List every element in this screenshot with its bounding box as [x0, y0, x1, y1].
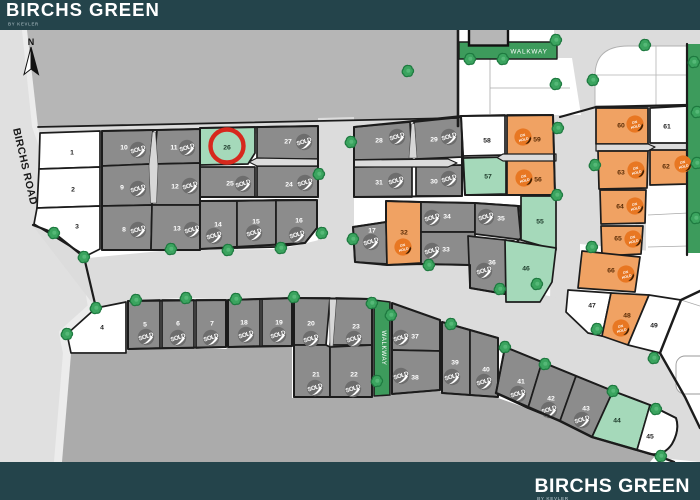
- svg-text:57: 57: [484, 173, 492, 180]
- svg-text:15: 15: [252, 218, 260, 225]
- svg-text:22: 22: [350, 371, 358, 378]
- svg-text:34: 34: [443, 213, 451, 220]
- svg-text:39: 39: [451, 359, 459, 366]
- svg-text:BIRCHS GREEN: BIRCHS GREEN: [534, 475, 690, 497]
- svg-text:BIRCHS GREEN: BIRCHS GREEN: [6, 0, 160, 20]
- svg-text:43: 43: [582, 405, 590, 412]
- svg-text:24: 24: [285, 181, 293, 188]
- svg-text:42: 42: [547, 395, 555, 402]
- svg-text:4: 4: [100, 324, 104, 331]
- svg-text:28: 28: [375, 137, 383, 144]
- svg-text:47: 47: [588, 302, 596, 309]
- svg-text:30: 30: [430, 178, 438, 185]
- svg-text:WALKWAY: WALKWAY: [510, 49, 547, 56]
- svg-text:65: 65: [614, 235, 622, 242]
- svg-text:46: 46: [522, 265, 530, 272]
- svg-text:32: 32: [400, 229, 408, 236]
- svg-text:64: 64: [616, 203, 624, 210]
- svg-text:48: 48: [623, 312, 631, 319]
- svg-text:25: 25: [226, 180, 234, 187]
- svg-text:56: 56: [534, 176, 542, 183]
- svg-text:19: 19: [275, 319, 283, 326]
- svg-text:5: 5: [143, 321, 147, 328]
- svg-text:3: 3: [75, 223, 79, 230]
- svg-text:21: 21: [312, 371, 320, 378]
- svg-text:49: 49: [650, 322, 658, 329]
- svg-text:60: 60: [617, 122, 625, 129]
- svg-text:1: 1: [70, 149, 74, 156]
- svg-text:6: 6: [176, 320, 180, 327]
- svg-text:44: 44: [613, 417, 621, 424]
- svg-text:11: 11: [170, 144, 177, 151]
- svg-text:13: 13: [173, 225, 181, 232]
- svg-text:35: 35: [497, 215, 505, 222]
- svg-text:N: N: [28, 37, 35, 47]
- svg-text:45: 45: [646, 433, 654, 440]
- svg-text:38: 38: [411, 374, 419, 381]
- svg-text:7: 7: [210, 320, 214, 327]
- svg-text:63: 63: [617, 169, 625, 176]
- svg-text:10: 10: [120, 144, 128, 151]
- svg-text:18: 18: [240, 319, 248, 326]
- svg-text:29: 29: [430, 136, 438, 143]
- svg-text:40: 40: [482, 366, 490, 373]
- svg-text:8: 8: [122, 226, 126, 233]
- svg-text:31: 31: [375, 179, 383, 186]
- svg-text:12: 12: [171, 183, 179, 190]
- svg-text:20: 20: [307, 320, 315, 327]
- svg-text:33: 33: [442, 246, 450, 253]
- svg-text:61: 61: [663, 123, 671, 130]
- svg-text:58: 58: [483, 137, 491, 144]
- svg-text:66: 66: [607, 267, 615, 274]
- svg-text:37: 37: [411, 333, 419, 340]
- svg-text:23: 23: [352, 323, 360, 330]
- svg-text:16: 16: [295, 217, 303, 224]
- svg-text:41: 41: [517, 378, 525, 385]
- svg-text:55: 55: [536, 218, 544, 225]
- svg-text:14: 14: [214, 221, 222, 228]
- svg-text:62: 62: [662, 163, 670, 170]
- svg-text:BY KEVLER: BY KEVLER: [8, 22, 39, 27]
- svg-text:26: 26: [223, 144, 231, 151]
- svg-text:17: 17: [368, 227, 376, 234]
- svg-text:27: 27: [284, 138, 292, 145]
- svg-text:9: 9: [120, 184, 124, 191]
- svg-text:WALKWAY: WALKWAY: [380, 331, 387, 366]
- svg-text:2: 2: [71, 186, 75, 193]
- svg-text:59: 59: [533, 136, 541, 143]
- svg-text:BY KEVLER: BY KEVLER: [537, 496, 569, 500]
